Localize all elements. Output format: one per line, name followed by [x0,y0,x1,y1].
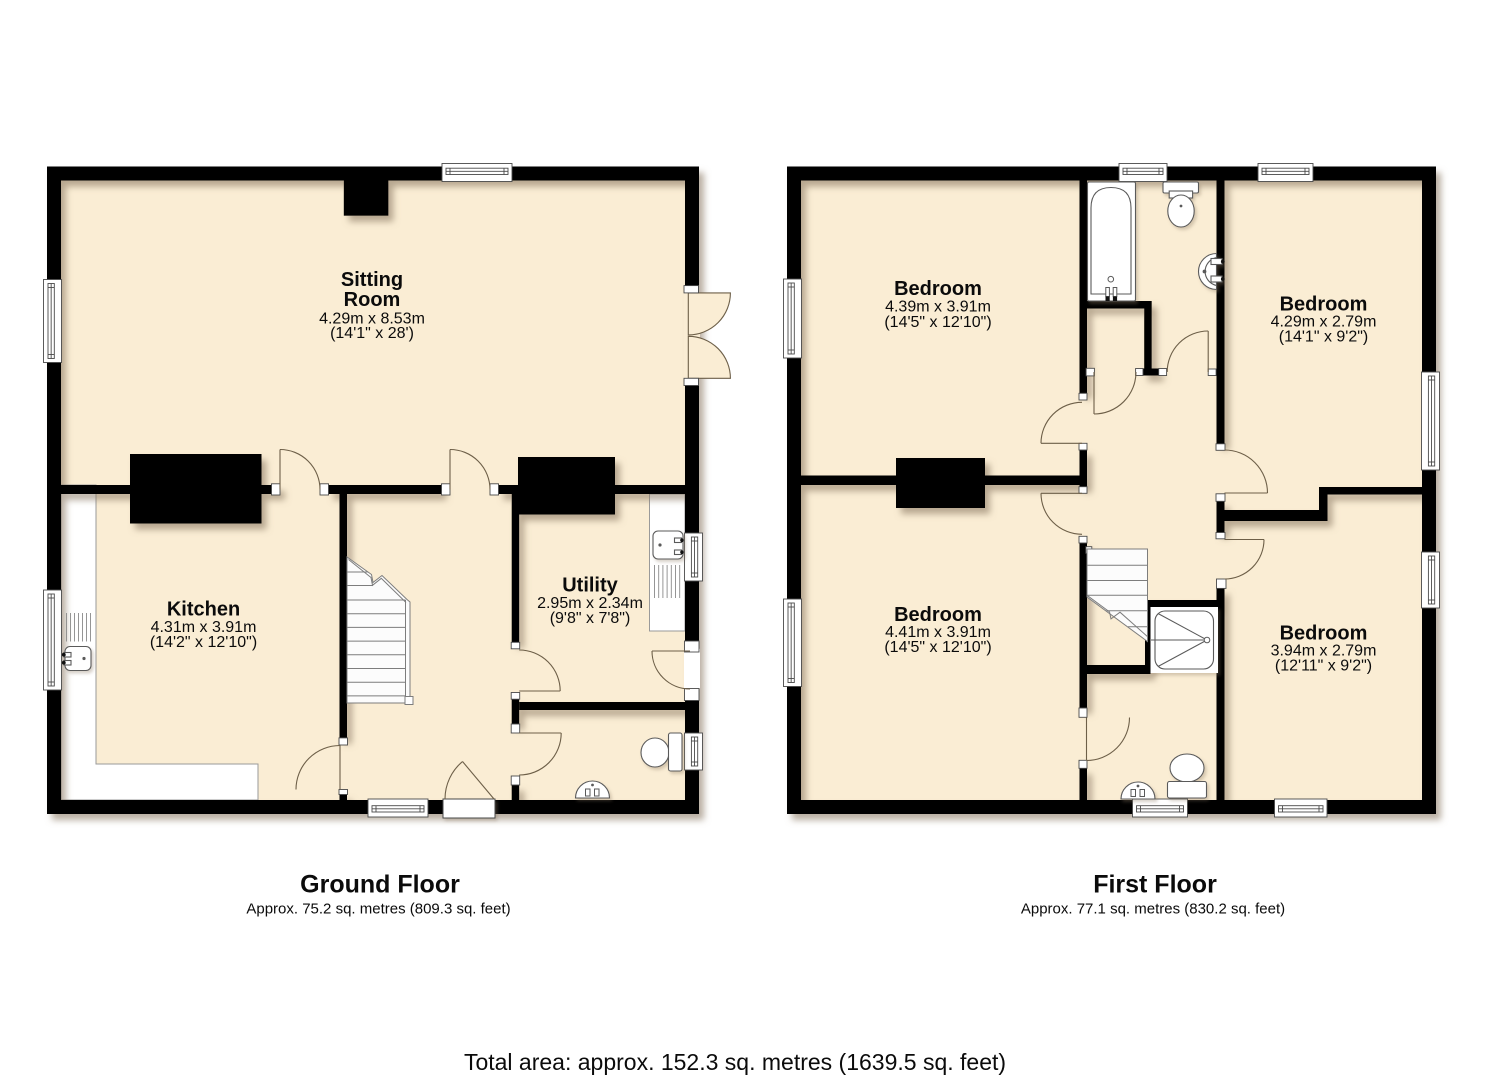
svg-text:(14'1" x 9'2"): (14'1" x 9'2") [1279,329,1369,346]
svg-text:Sitting: Sitting [341,269,403,291]
svg-text:Kitchen: Kitchen [167,599,240,621]
svg-text:Room: Room [344,289,401,311]
svg-text:Bedroom: Bedroom [1280,294,1368,316]
svg-text:Approx. 75.2 sq. metres (809.3: Approx. 75.2 sq. metres (809.3 sq. feet) [246,901,510,918]
svg-text:Bedroom: Bedroom [1280,623,1368,645]
svg-text:(14'2" x 12'10"): (14'2" x 12'10") [150,634,257,651]
svg-text:Ground Floor: Ground Floor [300,871,460,899]
svg-text:Bedroom: Bedroom [894,278,982,300]
svg-text:First Floor: First Floor [1093,871,1217,899]
svg-text:4.39m x 3.91m: 4.39m x 3.91m [885,299,991,316]
svg-text:(14'5" x 12'10"): (14'5" x 12'10") [884,639,991,656]
svg-text:(9'8" x 7'8"): (9'8" x 7'8") [550,610,631,627]
svg-text:Bedroom: Bedroom [894,604,982,626]
svg-text:Utility: Utility [562,575,618,597]
svg-text:Total area: approx. 152.3 sq.: Total area: approx. 152.3 sq. metres (16… [464,1049,1006,1075]
svg-text:Approx. 77.1 sq. metres (830.2: Approx. 77.1 sq. metres (830.2 sq. feet) [1021,901,1285,918]
svg-text:(14'5" x 12'10"): (14'5" x 12'10") [884,314,991,331]
svg-text:(12'11" x 9'2"): (12'11" x 9'2") [1275,658,1372,675]
svg-text:(14'1" x 28'): (14'1" x 28') [330,325,414,342]
